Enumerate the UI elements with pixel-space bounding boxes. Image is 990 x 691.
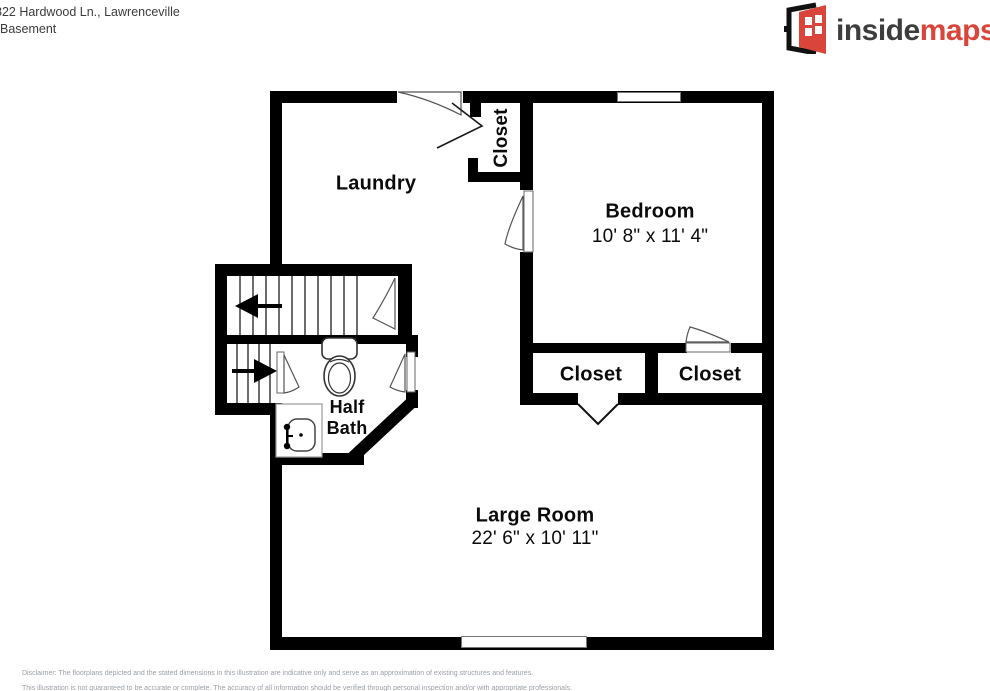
wall-bedroom-bottom-right: [731, 343, 762, 353]
open-door-icon: [784, 2, 830, 54]
door-swing-bath-east: [390, 352, 415, 392]
wall-bedroom-west-lower: [520, 252, 533, 405]
room-label-laundry: Laundry: [336, 173, 416, 196]
wall-right: [762, 91, 774, 650]
logo-text-inside: inside: [836, 14, 920, 47]
room-label-half-bath: Half Bath: [327, 397, 368, 439]
room-label-bedroom: Bedroom: [605, 201, 694, 224]
wall-stair-right: [398, 264, 412, 344]
door-swing-stair-top: [373, 278, 395, 329]
arrow-right-icon: [232, 359, 277, 383]
door-swing-bath-west: [277, 352, 299, 393]
wall-closets-bottom-right: [618, 393, 762, 405]
floorplan-page: 822 Hardwood Ln., Lawrenceville Basement…: [0, 0, 990, 691]
room-label-closet-left: Closet: [560, 364, 622, 387]
logo-text-maps: maps: [920, 14, 990, 47]
disclaimer-line2: This illustration is not guaranteed to b…: [22, 682, 982, 691]
room-dims-bedroom: 10' 8" x 11' 4": [592, 226, 708, 248]
wall-closets-bottom-left: [520, 393, 578, 405]
wall-left-lower: [270, 403, 282, 650]
wall-hallcloset-bottom: [468, 172, 529, 182]
disclaimer: Disclaimer: The floorplans depicted and …: [22, 667, 982, 691]
property-address: 822 Hardwood Ln., Lawrenceville: [0, 4, 180, 21]
stairs-upper-run: [240, 276, 357, 335]
floorplan-symbols: [0, 0, 990, 691]
room-dims-large-room: 22' 6" x 10' 11": [471, 528, 598, 550]
wall-stair-bath-divider: [227, 335, 418, 344]
door-swing-bedroom-closet: [686, 327, 730, 352]
door-swing-bedroom: [505, 191, 533, 252]
disclaimer-line1: Disclaimer: The floorplans depicted and …: [22, 667, 982, 682]
header: 822 Hardwood Ln., Lawrenceville Basement: [0, 4, 180, 38]
sink-icon: [276, 404, 322, 457]
wall-left-upper: [270, 91, 282, 276]
wall-stairwell-left: [215, 264, 227, 415]
half-bath-line1: Half: [327, 397, 368, 418]
wall-hallcloset-stub: [470, 91, 481, 117]
bifold-door-icon: [578, 404, 618, 424]
arrow-left-icon: [235, 294, 282, 318]
room-label-large-room: Large Room: [476, 505, 595, 528]
window-large-room: [461, 636, 587, 648]
wall-bath-east-upper: [406, 335, 418, 357]
stairs-lower-run: [237, 344, 270, 403]
logo-wordmark: insidemaps: [836, 14, 990, 48]
room-label-closet-right: Closet: [679, 364, 741, 387]
wall-bedroom-bottom-left: [527, 343, 687, 353]
toilet-icon: [322, 338, 357, 396]
room-label-hall-closet: Closet: [491, 108, 513, 167]
wall-stairwell-top: [215, 264, 412, 276]
half-bath-line2: Bath: [327, 418, 368, 439]
door-opening-top: [397, 91, 463, 103]
wall-stairwell-bottom: [215, 403, 282, 415]
insidemaps-logo: insidemaps: [784, 2, 990, 54]
wall-closet-divider: [645, 350, 658, 397]
window-bedroom: [617, 92, 681, 102]
floor-label: Basement: [0, 21, 180, 38]
